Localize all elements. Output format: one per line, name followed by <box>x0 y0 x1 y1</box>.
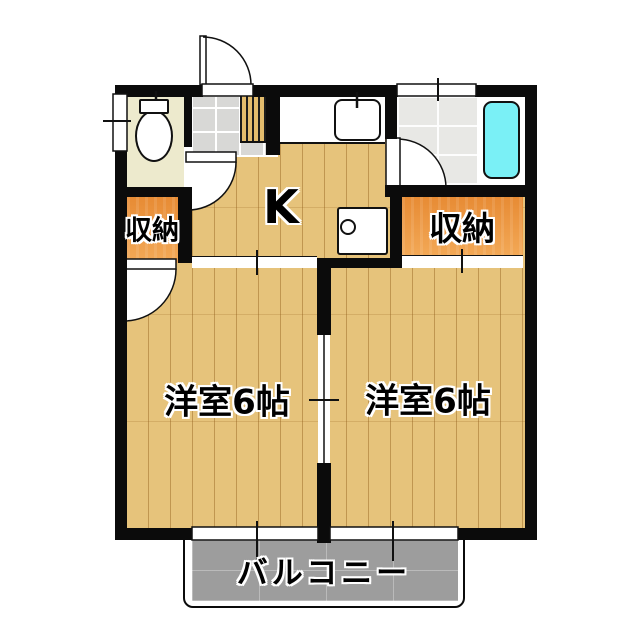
wall-closet-right-side <box>390 185 402 267</box>
entrance-door-icon <box>200 36 206 85</box>
floor-plan: K 収納 収納 洋室6帖 洋室6帖 バルコニー <box>0 0 640 640</box>
entrance-door-arc <box>203 37 251 85</box>
toilet-icon <box>135 110 173 162</box>
wall-left <box>115 85 127 540</box>
bathtub-icon <box>483 101 520 179</box>
wall-bathroom-left <box>385 85 397 139</box>
balcony-label: バルコニー <box>237 548 411 593</box>
bathroom-floor <box>397 97 477 185</box>
wall-bottom-left <box>115 528 193 540</box>
closet-left-label: 収納 <box>125 209 179 248</box>
kitchen-sink-icon <box>334 99 381 141</box>
room-left-label: 洋室6帖 <box>164 375 290 424</box>
opening-closet-right-sliding-doors <box>402 255 523 268</box>
bathroom-window-icon <box>397 84 476 96</box>
wall-partition-top <box>317 258 331 335</box>
wall-entrance-step-side <box>266 85 280 155</box>
wall-closet-left-side <box>178 187 192 263</box>
kitchen-label: K <box>263 180 299 234</box>
stove-burner-circle <box>340 219 356 235</box>
entrance-step <box>240 95 268 143</box>
wall-partition-bottom <box>317 463 331 543</box>
wall-bottom-right <box>458 528 537 540</box>
wall-right <box>525 85 537 540</box>
opening-room-partition <box>318 335 330 463</box>
wall-bathroom-bottom <box>385 185 525 197</box>
wall-toilet-right <box>184 85 192 147</box>
closet-right-label: 収納 <box>429 202 495 250</box>
room-right-label: 洋室6帖 <box>365 374 491 423</box>
toilet-tank <box>139 99 169 114</box>
opening-kitchen-to-left-room <box>192 256 317 268</box>
